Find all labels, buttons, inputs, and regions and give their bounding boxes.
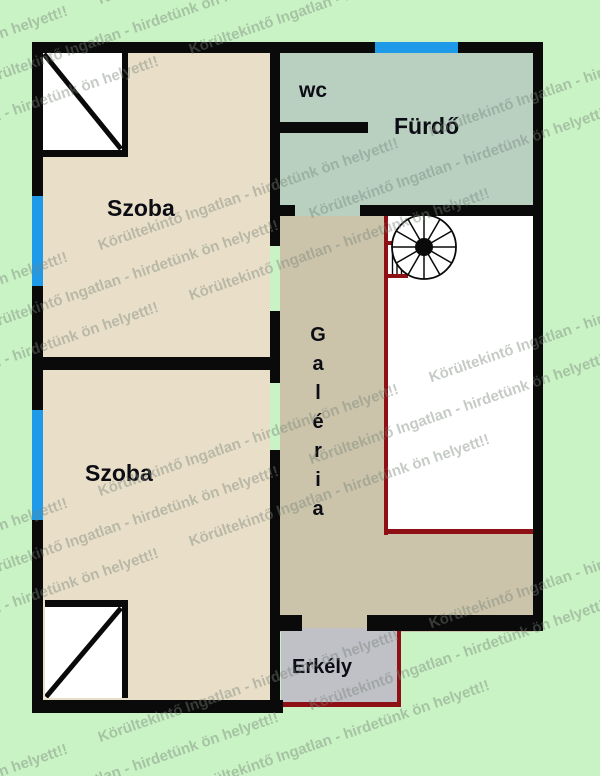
label-room-top: Szoba — [107, 197, 175, 220]
wall-center-lower — [270, 450, 280, 703]
wall-bathroom-south — [360, 205, 543, 216]
window-left-room-top — [32, 196, 43, 286]
wall-top — [32, 42, 543, 53]
label-wc: wc — [299, 80, 327, 101]
wall-left — [32, 42, 43, 713]
wall-gallery-south-stub — [270, 615, 302, 631]
wall-right — [533, 42, 543, 631]
floor-plan-canvas: Szoba Szoba wc Fürdő Galéria Erkély Körü… — [0, 0, 600, 776]
balcony-railing-right — [397, 628, 401, 707]
bed-symbol-top-left — [43, 53, 128, 157]
spiral-staircase-icon — [390, 213, 458, 281]
label-gallery: Galéria — [308, 324, 328, 527]
wall-bottom — [32, 700, 283, 713]
wall-center-upper — [270, 42, 280, 246]
bed-diagonal-icon — [43, 53, 122, 150]
balcony-railing-bottom — [281, 702, 401, 707]
wall-wc-partition — [280, 122, 368, 133]
wall-center-middle — [270, 311, 280, 383]
wall-bathroom-south-stub — [280, 205, 295, 216]
wall-room-divider — [36, 357, 280, 370]
label-bathroom: Fürdő — [394, 115, 459, 138]
label-balcony: Erkély — [292, 657, 352, 677]
bed-symbol-bottom-left — [45, 600, 128, 698]
wall-gallery-south — [367, 615, 543, 631]
bed-diagonal-icon — [45, 607, 122, 698]
window-left-room-bottom — [32, 410, 43, 520]
label-room-bottom: Szoba — [85, 462, 153, 485]
window-top-bathroom — [375, 42, 458, 53]
gallery-railing-bottom — [384, 529, 533, 534]
